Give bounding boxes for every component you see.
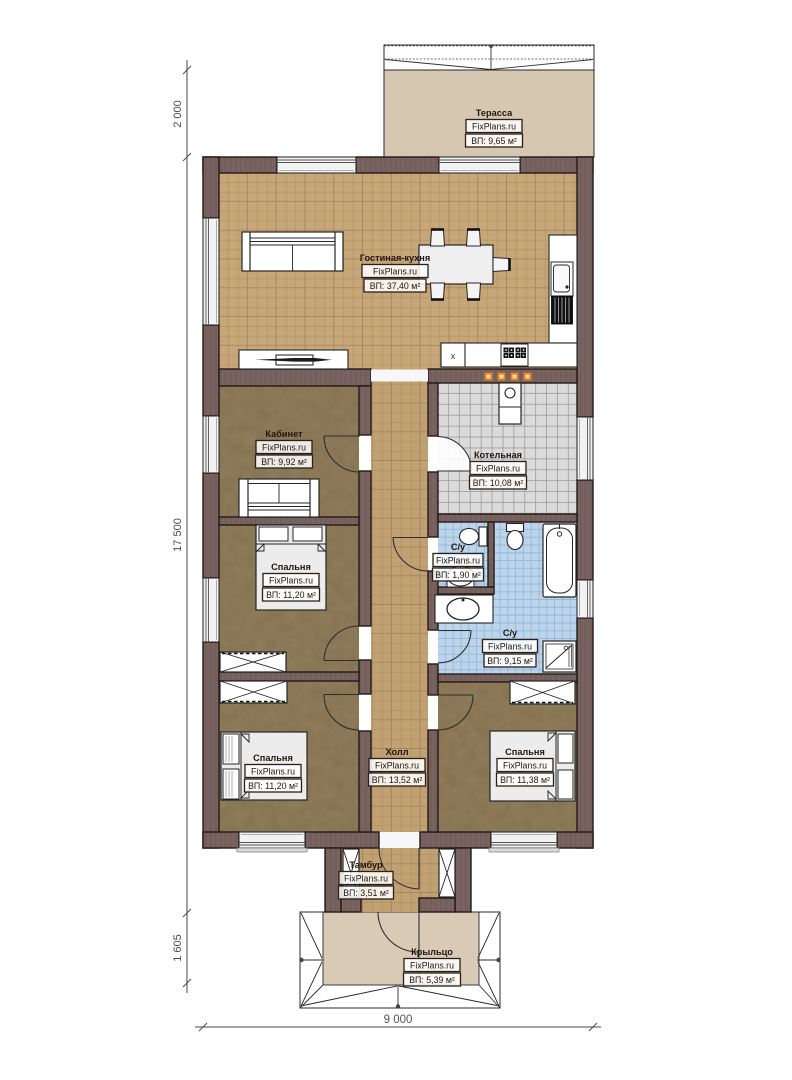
- svg-text:Холл: Холл: [385, 747, 408, 757]
- svg-text:Спальня: Спальня: [253, 753, 293, 763]
- svg-text:С/у: С/у: [503, 628, 518, 638]
- svg-text:FixPlans.ru: FixPlans.ru: [436, 556, 480, 566]
- svg-text:ВП: 11,20 м²: ВП: 11,20 м²: [266, 590, 316, 600]
- svg-text:Спальня: Спальня: [271, 562, 311, 572]
- svg-text:FixPlans.ru: FixPlans.ru: [269, 576, 313, 586]
- svg-text:ВП: 1,90 м²: ВП: 1,90 м²: [435, 570, 481, 580]
- svg-text:FixPlans.ru: FixPlans.ru: [262, 443, 306, 453]
- svg-text:ВП: 37,40 м²: ВП: 37,40 м²: [370, 281, 421, 291]
- svg-text:FixPlans.ru: FixPlans.ru: [251, 767, 295, 777]
- svg-text:ВП: 9,65 м²: ВП: 9,65 м²: [471, 136, 517, 146]
- svg-text:Кабинет: Кабинет: [265, 429, 303, 439]
- svg-text:С/у: С/у: [451, 542, 466, 552]
- svg-text:ВП: 3,51 м²: ВП: 3,51 м²: [343, 888, 389, 898]
- svg-text:2 000: 2 000: [172, 100, 184, 128]
- svg-text:ВП: 10,08 м²: ВП: 10,08 м²: [473, 478, 524, 488]
- svg-text:1 605: 1 605: [172, 934, 184, 962]
- svg-text:FixPlans.ru: FixPlans.ru: [410, 961, 454, 971]
- svg-text:FixPlans.ru: FixPlans.ru: [503, 761, 547, 771]
- svg-text:Спальня: Спальня: [505, 747, 545, 757]
- svg-text:Крыльцо: Крыльцо: [411, 947, 453, 957]
- svg-text:FixPlans.ru: FixPlans.ru: [488, 642, 532, 652]
- svg-text:17 500: 17 500: [172, 518, 184, 552]
- svg-text:FixPlans.ru: FixPlans.ru: [344, 874, 388, 884]
- svg-text:FixPlans.ru: FixPlans.ru: [375, 761, 419, 771]
- svg-text:ВП: 9,15 м²: ВП: 9,15 м²: [487, 656, 533, 666]
- svg-text:ВП: 11,20 м²: ВП: 11,20 м²: [248, 781, 298, 791]
- svg-text:ВП: 13,52 м²: ВП: 13,52 м²: [372, 775, 423, 785]
- svg-text:FixPlans.ru: FixPlans.ru: [476, 464, 520, 474]
- svg-text:ВП: 5,39 м²: ВП: 5,39 м²: [409, 975, 455, 985]
- svg-text:FixPlans.ru: FixPlans.ru: [373, 267, 417, 277]
- svg-text:Терасса: Терасса: [476, 108, 513, 118]
- svg-text:ВП: 9,92 м²: ВП: 9,92 м²: [261, 457, 307, 467]
- svg-text:9 000: 9 000: [384, 1014, 413, 1026]
- svg-text:ВП: 11,38 м²: ВП: 11,38 м²: [500, 775, 550, 785]
- svg-text:x: x: [451, 351, 456, 361]
- svg-text:FixPlans.ru: FixPlans.ru: [472, 122, 516, 132]
- svg-text:Котельная: Котельная: [474, 450, 522, 460]
- svg-text:Тамбур: Тамбур: [349, 860, 383, 870]
- svg-text:Гостиная-кухня: Гостиная-кухня: [360, 253, 430, 263]
